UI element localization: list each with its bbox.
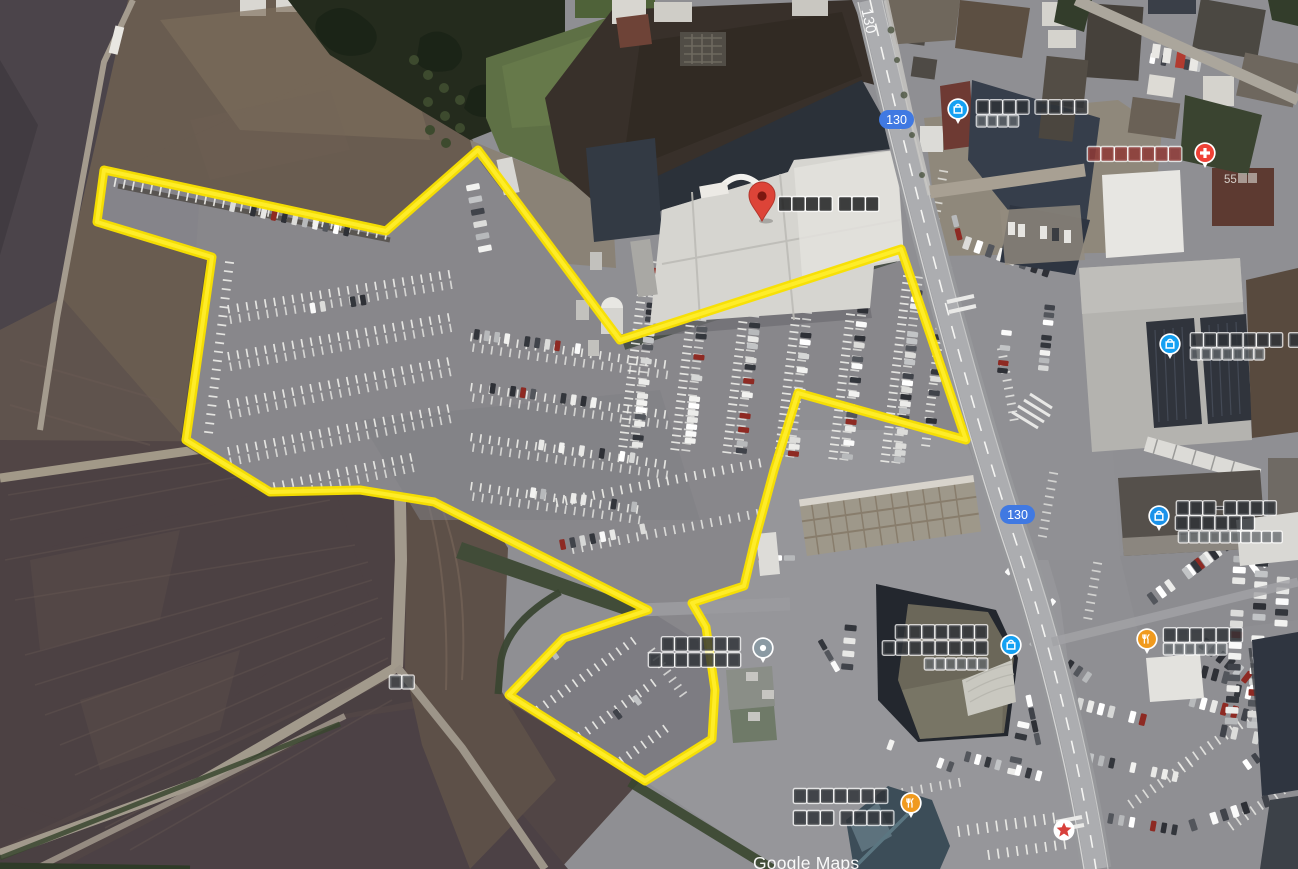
svg-text:Google Maps: Google Maps [753,853,859,869]
svg-text:130: 130 [1007,508,1028,522]
svg-text:130: 130 [886,113,907,127]
svg-text:55: 55 [1224,174,1237,186]
